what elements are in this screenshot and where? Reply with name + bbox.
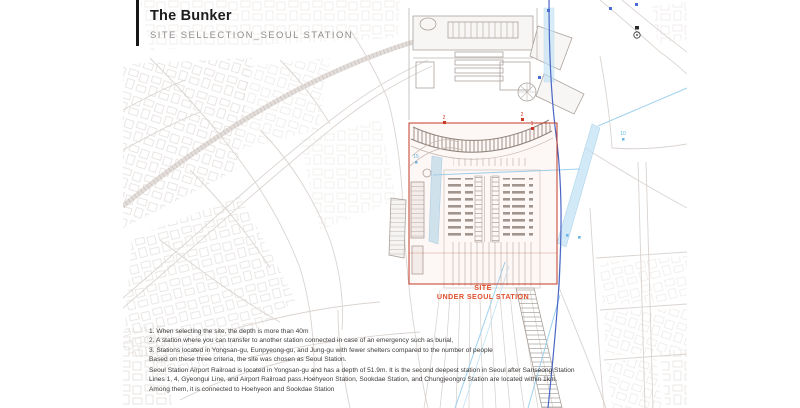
title-rule: [136, 0, 139, 46]
criteria-line: Based on these three criteria, the site …: [149, 355, 493, 364]
criteria-line: 2. A station where you can transfer to a…: [149, 336, 493, 345]
site-callout-line2: UNDER SEOUL STATION: [409, 293, 557, 302]
street-fabric-east: [560, 0, 687, 408]
exit-10-marker-label: 10: [620, 131, 626, 137]
site-criteria-text: 1. When selecting the site, the depth is…: [149, 327, 493, 365]
site-callout: SITE UNDER SEOUL STATION: [409, 284, 557, 301]
criteria-line: 1. When selecting the site, the depth is…: [149, 327, 493, 336]
description-line: Lines 1, 4, Gyeongui Line, and Airport R…: [149, 375, 575, 384]
description-line: Seoul Station Airport Railroad is locate…: [149, 366, 575, 375]
red-marker-c-label: 1: [531, 121, 534, 127]
description-line: Among them, it is connected to Hoehyeon …: [149, 385, 575, 394]
site-boundary-box: 2 2 1: [409, 112, 557, 284]
red-marker-b-label: 2: [521, 112, 524, 118]
red-marker-a-label: 2: [443, 115, 446, 121]
presentation-slide: 15 10 2 2 1: [0, 0, 800, 408]
site-description-text: Seoul Station Airport Railroad is locate…: [149, 366, 575, 394]
monument-icon: [634, 26, 640, 38]
page-subtitle: SITE SELLECTION_SEOUL STATION: [150, 30, 353, 41]
criteria-line: 3. Stations located in Yongsan-gu, Eunpy…: [149, 346, 493, 355]
page-title: The Bunker: [150, 8, 232, 24]
